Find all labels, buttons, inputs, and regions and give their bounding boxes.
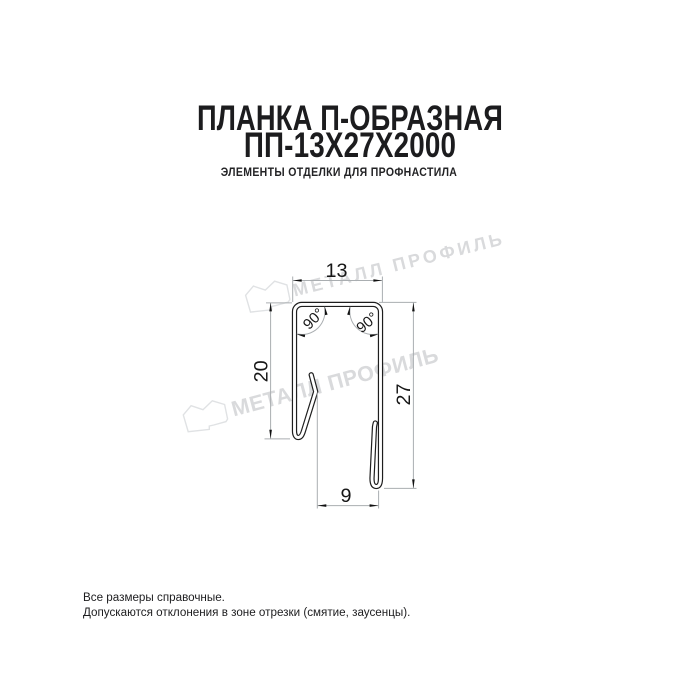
svg-text:13: 13 [325,260,347,282]
svg-text:27: 27 [393,383,415,405]
svg-text:МЕТАЛЛ ПРОФИЛЬ: МЕТАЛЛ ПРОФИЛЬ [291,228,507,300]
svg-text:90°: 90° [300,305,328,333]
svg-text:9: 9 [340,485,351,507]
svg-text:90°: 90° [353,309,381,337]
svg-text:20: 20 [251,360,273,382]
